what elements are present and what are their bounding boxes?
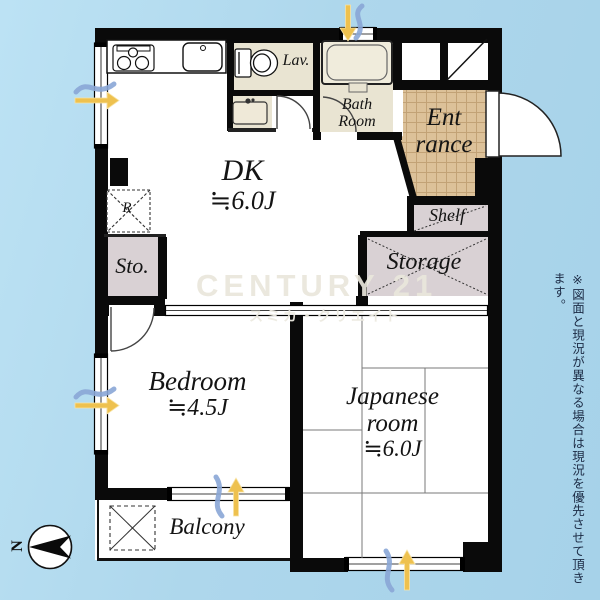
floor-plan: N CENTURY 21 スミカ・クリエイト DK ≒6.0J Bedroom … — [0, 0, 600, 600]
bath-door-opening — [321, 132, 357, 140]
japanese-room-line2: room — [330, 410, 455, 437]
refrigerator-label: R — [107, 200, 147, 216]
japanese-room-label: Japanese room ≒6.0J — [330, 383, 455, 462]
bottom-right-corner-wall — [463, 542, 502, 572]
balcony-label: Balcony — [148, 515, 266, 540]
hallway-door-opening — [276, 127, 312, 133]
bath-right-wall — [393, 28, 402, 90]
lav-bottom-wall — [227, 90, 315, 96]
bath-label: Bath Room — [318, 96, 396, 131]
right-wall — [488, 28, 502, 542]
lav-label: Lav. — [276, 52, 316, 69]
japanese-room-line1: Japanese — [330, 383, 455, 410]
dk-label: DK ≒6.0J — [170, 155, 315, 215]
dk-size: ≒6.0J — [170, 187, 315, 215]
shelf-storage-divider — [360, 231, 488, 237]
bedroom-japanese-divider-wall — [290, 302, 303, 570]
sto-top-edge — [104, 234, 166, 237]
shelf-top-wall — [407, 196, 502, 205]
lav-left-wall — [227, 28, 234, 96]
bedroom-name: Bedroom — [115, 367, 280, 396]
meter-box-bottom-wall — [402, 80, 502, 90]
shelf-label: Shelf — [409, 206, 485, 225]
disclaimer-note: ※図面と現況が異なる場合は現況を優先させて頂きます。 — [549, 272, 587, 597]
bath-line1: Bath — [318, 96, 396, 113]
watermark-subtitle: スミカ・クリエイト — [249, 306, 402, 326]
meter-box-divider — [440, 28, 448, 83]
bedroom-size: ≒4.5J — [115, 396, 280, 422]
washbasin-alcove-floor — [228, 96, 272, 128]
bedroom-label: Bedroom ≒4.5J — [115, 367, 280, 422]
entrance-line2: rance — [405, 131, 483, 158]
bath-line2: Room — [318, 113, 396, 130]
bedroom-door-opening — [109, 305, 154, 316]
entrance-line1: Ent — [405, 104, 483, 131]
compass: N — [9, 526, 72, 569]
pillar — [110, 158, 128, 186]
alcove-left-wall — [227, 96, 233, 131]
entrance-label: Ent rance — [405, 104, 483, 158]
sto-label: Sto. — [103, 254, 161, 278]
compass-north-label: N — [9, 540, 26, 552]
bedroom-bottom-wall — [95, 488, 172, 500]
storage-label: Storage — [362, 250, 486, 276]
japanese-room-size: ≒6.0J — [330, 437, 455, 462]
dk-name: DK — [170, 155, 315, 187]
